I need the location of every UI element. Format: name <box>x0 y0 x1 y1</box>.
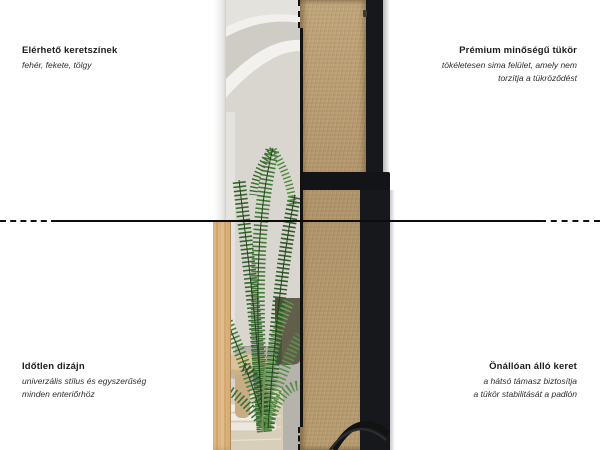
screw-detail <box>363 10 367 17</box>
product-infographic: Elérhető keretszínek fehér, fekete, tölg… <box>0 0 600 450</box>
black-frame-strip <box>366 0 383 176</box>
annotation-subtitle-line: a hátsó támasz biztosítja <box>474 375 577 388</box>
mirror-figure <box>213 0 395 450</box>
vertical-guide-dash-top <box>298 0 300 28</box>
mdf-back-panel <box>300 0 368 450</box>
annotation-subtitle-line: minden enteriőrhöz <box>22 388 146 401</box>
annotation-subtitle-line: a tükör stabilitását a padlón <box>474 388 577 401</box>
cable-detail <box>300 390 395 450</box>
annotation-title: Elérhető keretszínek <box>22 45 117 56</box>
mirror-front-photo <box>213 0 300 450</box>
frame-left-edge <box>300 28 303 427</box>
annotation-title: Önállóan álló keret <box>474 361 577 372</box>
mirror-back-photo <box>300 0 395 450</box>
support-hinge-bar <box>300 172 390 190</box>
vertical-guide-dash-bottom <box>298 427 300 450</box>
horizontal-guide-dash-right <box>540 220 600 222</box>
annotation-title: Időtlen dizájn <box>22 361 146 372</box>
horizontal-guide-dash-left <box>0 220 57 222</box>
white-frame-strip <box>213 0 226 220</box>
annotation-timeless-design: Időtlen dizájn univerzális stílus és egy… <box>22 361 146 401</box>
annotation-subtitle-line: torzítja a tükröződést <box>442 72 577 85</box>
annotation-frame-colors: Elérhető keretszínek fehér, fekete, tölg… <box>22 45 117 72</box>
annotation-freestanding-frame: Önállóan álló keret a hátsó támasz bizto… <box>474 361 577 401</box>
annotation-subtitle-line: univerzális stílus és egyszerűség <box>22 375 146 388</box>
annotation-subtitle-line: tökéletesen sima felület, amely nem <box>442 59 577 72</box>
annotation-premium-mirror: Prémium minőségű tükör tökéletesen sima … <box>442 45 577 85</box>
frame-edge-highlight <box>383 0 390 176</box>
horizontal-guide-line <box>57 220 540 222</box>
oak-frame-strip <box>213 220 231 450</box>
annotation-subtitle-line: fehér, fekete, tölgy <box>22 59 117 72</box>
annotation-title: Prémium minőségű tükör <box>442 45 577 56</box>
